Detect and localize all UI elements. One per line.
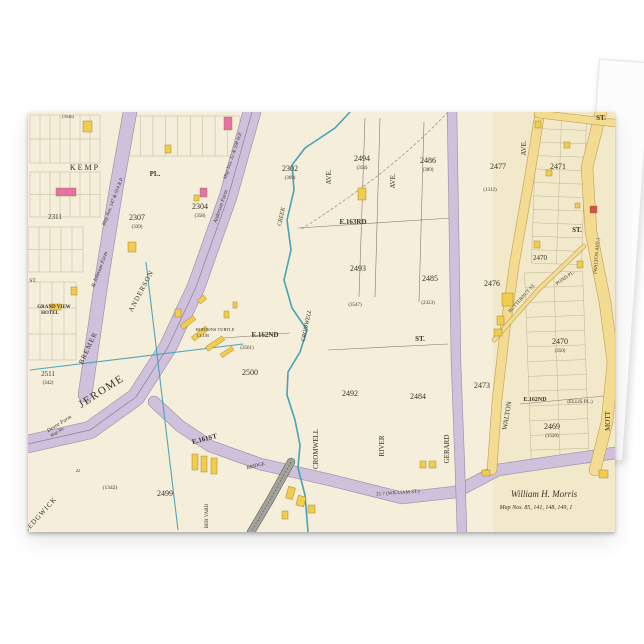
map-label: (3546) xyxy=(62,114,74,119)
map-label: Map Nos. 85, 141, 148, 149, 1 xyxy=(499,504,573,511)
map-label: 2492 xyxy=(342,389,358,398)
map-label: (339) xyxy=(132,225,143,230)
map-label: 2470 xyxy=(552,337,568,346)
map-label: RIVER xyxy=(378,435,386,456)
map-label: 2494 xyxy=(354,154,370,163)
map-label: 2311 xyxy=(48,213,62,221)
map-label: 2499 xyxy=(157,489,173,498)
map-label: GERARD xyxy=(443,435,451,464)
map-label: 2302 xyxy=(282,164,298,173)
map-label: CROMWELL xyxy=(312,429,320,469)
map-label: (358) xyxy=(195,214,206,219)
map-label: (342) xyxy=(43,381,54,386)
map-label: 2493 xyxy=(350,264,366,273)
map-label: (354) xyxy=(357,166,368,171)
map-label: ST. xyxy=(596,114,606,122)
map-label: ST. xyxy=(572,226,582,234)
map-label: ST. xyxy=(29,278,37,284)
map-label: 22 xyxy=(76,468,81,473)
map-label: PL. xyxy=(150,170,161,178)
map-label: AVE. xyxy=(325,169,333,184)
map-label: E.162ND xyxy=(523,397,547,403)
map-label: 2485 xyxy=(422,274,438,283)
map-label: AVE. xyxy=(389,173,397,188)
map-label: KEMP xyxy=(70,163,100,172)
map-label: (3547) xyxy=(348,303,362,308)
map-label: 2471 xyxy=(550,162,566,171)
map-label: (389) xyxy=(423,168,434,173)
map-label: 2500 xyxy=(242,368,258,377)
map-label: HORTONS TURTLE xyxy=(196,327,235,332)
map-label: (1520) xyxy=(545,434,559,439)
map-label: 2476 xyxy=(484,279,500,288)
map-label: ST. xyxy=(415,335,425,343)
map-label: (1342) xyxy=(103,484,118,491)
map-label: (1312) xyxy=(483,188,497,193)
map-label: AVE. xyxy=(520,140,528,155)
map-label: 2511 xyxy=(41,370,55,378)
map-label: (ELLIS PL.) xyxy=(567,400,593,405)
map-label: GRAND VIEW xyxy=(37,305,70,310)
map-label: BER YARD xyxy=(205,503,210,528)
map-label: E.162ND xyxy=(251,331,278,339)
map-label: (350) xyxy=(555,349,566,354)
map-label: MOTT xyxy=(604,410,612,431)
map-label: 2469 xyxy=(544,422,560,431)
map-label: (2323) xyxy=(421,301,435,306)
map-label: 2470 xyxy=(533,254,548,262)
map-label: (3561) xyxy=(240,346,254,351)
map-label: HOTEL xyxy=(41,311,59,316)
map-label: CLUB xyxy=(197,333,209,338)
greeting-card-front: KEMPPL.2307(339)2304(358)2302(369)2494(3… xyxy=(28,112,615,532)
map-label: 2486 xyxy=(420,156,436,165)
map-label: (369) xyxy=(285,176,296,181)
atlas-map-image: KEMPPL.2307(339)2304(358)2302(369)2494(3… xyxy=(28,112,615,532)
map-label: 2304 xyxy=(192,202,208,211)
map-label: 2484 xyxy=(410,392,426,401)
map-label: E.163RD xyxy=(339,218,366,226)
map-label: William H. Morris xyxy=(511,489,578,499)
map-label: 2473 xyxy=(474,381,490,390)
map-label: 2307 xyxy=(129,213,145,222)
product-backdrop: KEMPPL.2307(339)2304(358)2302(369)2494(3… xyxy=(0,0,644,644)
map-label: 2477 xyxy=(490,162,506,171)
